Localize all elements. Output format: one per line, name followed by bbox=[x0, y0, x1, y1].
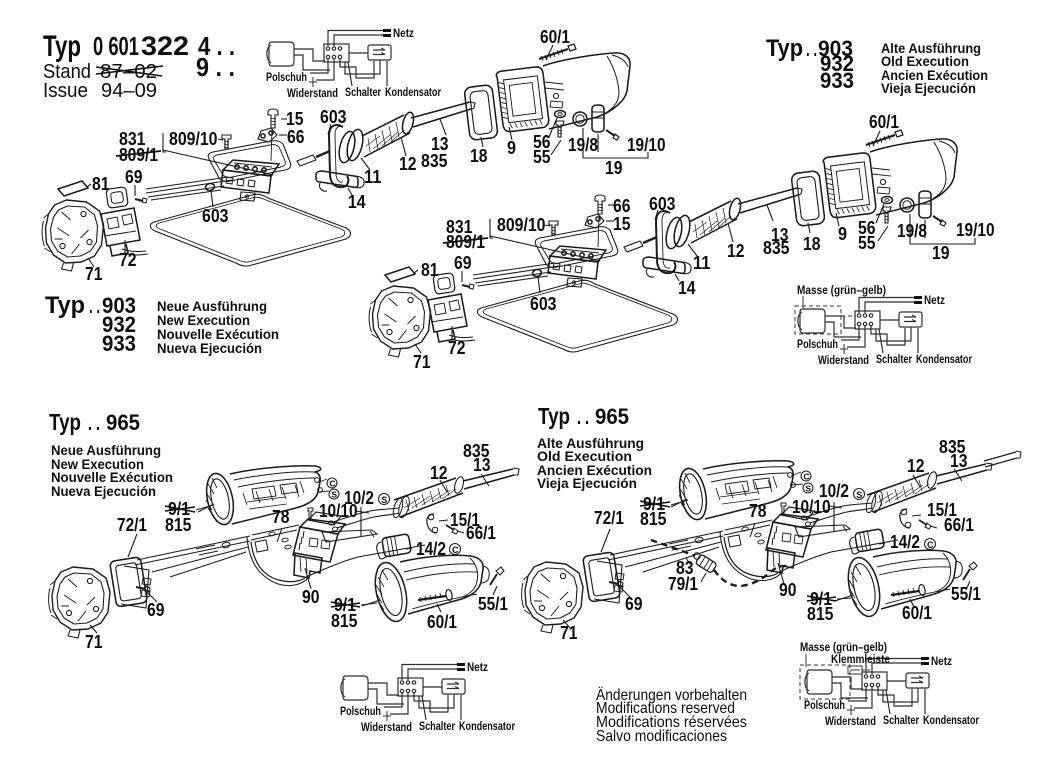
svg-text:19: 19 bbox=[932, 243, 950, 263]
svg-text:60/1: 60/1 bbox=[869, 112, 899, 132]
svg-text:835: 835 bbox=[763, 238, 790, 258]
svg-text:S: S bbox=[381, 495, 387, 505]
svg-text:603: 603 bbox=[530, 294, 557, 314]
svg-text:. .: . . bbox=[577, 407, 589, 429]
svg-text:13: 13 bbox=[950, 451, 968, 471]
svg-text:72/1: 72/1 bbox=[117, 515, 147, 535]
svg-text:71: 71 bbox=[85, 264, 103, 284]
svg-text:603: 603 bbox=[320, 107, 347, 127]
svg-text:10/10: 10/10 bbox=[792, 497, 831, 517]
svg-text:Typ: Typ bbox=[45, 292, 85, 319]
svg-text:815: 815 bbox=[165, 515, 192, 535]
svg-text:60/1: 60/1 bbox=[540, 27, 570, 47]
svg-text:Old Execution: Old Execution bbox=[537, 449, 632, 464]
svg-text:Typ: Typ bbox=[538, 403, 570, 429]
svg-text:965: 965 bbox=[106, 410, 140, 435]
svg-text:90: 90 bbox=[779, 580, 797, 600]
svg-text:9: 9 bbox=[838, 224, 847, 244]
svg-text:14/2: 14/2 bbox=[890, 532, 920, 552]
svg-text:15: 15 bbox=[613, 214, 631, 234]
svg-text:71: 71 bbox=[560, 623, 578, 643]
svg-text:12: 12 bbox=[399, 154, 417, 174]
svg-text:10/10: 10/10 bbox=[319, 501, 358, 521]
svg-text:94–09: 94–09 bbox=[101, 80, 157, 102]
svg-text:Masse (grün–gelb): Masse (grün–gelb) bbox=[800, 642, 887, 654]
svg-text:18: 18 bbox=[803, 234, 821, 254]
svg-text:Nouvelle Exécution: Nouvelle Exécution bbox=[51, 470, 173, 485]
svg-text:19/8: 19/8 bbox=[897, 221, 927, 241]
svg-text:Salvo modificaciones: Salvo modificaciones bbox=[596, 728, 727, 745]
svg-text:Masse (grün–gelb): Masse (grün–gelb) bbox=[797, 283, 886, 297]
svg-text:11: 11 bbox=[364, 167, 382, 187]
svg-text:603: 603 bbox=[202, 206, 229, 226]
svg-text:. .: . . bbox=[89, 296, 100, 318]
svg-text:12: 12 bbox=[907, 456, 925, 476]
svg-text:Typ: Typ bbox=[43, 30, 81, 63]
svg-text:New Execution: New Execution bbox=[157, 313, 250, 328]
svg-text:322: 322 bbox=[141, 31, 189, 61]
svg-text:933: 933 bbox=[102, 331, 136, 356]
svg-text:Nouvelle Exécution: Nouvelle Exécution bbox=[157, 327, 279, 342]
svg-text:72/1: 72/1 bbox=[594, 508, 624, 528]
svg-text:72: 72 bbox=[448, 338, 466, 358]
svg-text:12: 12 bbox=[727, 241, 745, 261]
svg-text:Nueva Ejecución: Nueva Ejecución bbox=[51, 484, 156, 499]
svg-text:C: C bbox=[329, 479, 335, 489]
svg-text:Nueva Ejecución: Nueva Ejecución bbox=[157, 341, 262, 356]
svg-text:S: S bbox=[856, 490, 862, 500]
svg-text:81: 81 bbox=[92, 174, 110, 194]
svg-text:69: 69 bbox=[147, 600, 165, 620]
svg-text:55/1: 55/1 bbox=[951, 584, 981, 604]
svg-text:815: 815 bbox=[807, 604, 834, 624]
svg-text:18: 18 bbox=[470, 146, 488, 166]
svg-text:. .: . . bbox=[88, 413, 100, 435]
svg-text:Old Execution: Old Execution bbox=[881, 54, 969, 69]
svg-text:69: 69 bbox=[454, 253, 472, 273]
svg-text:C: C bbox=[803, 472, 809, 482]
svg-text:66/1: 66/1 bbox=[466, 523, 496, 543]
svg-text:Vieja Ejecución: Vieja Ejecución bbox=[881, 81, 976, 96]
svg-text:S: S bbox=[331, 490, 337, 500]
svg-text:66: 66 bbox=[287, 127, 305, 147]
svg-text:11: 11 bbox=[693, 253, 711, 273]
svg-text:S: S bbox=[805, 484, 811, 494]
svg-text:19/8: 19/8 bbox=[568, 135, 598, 155]
svg-text:78: 78 bbox=[749, 501, 767, 521]
svg-text:603: 603 bbox=[649, 194, 676, 214]
svg-text:19/10: 19/10 bbox=[627, 135, 666, 155]
svg-text:66/1: 66/1 bbox=[944, 515, 974, 535]
svg-text:55/1: 55/1 bbox=[478, 594, 508, 614]
svg-text:Neue Ausführung: Neue Ausführung bbox=[51, 443, 161, 458]
svg-text:965: 965 bbox=[595, 404, 629, 429]
svg-text:Neue Ausführung: Neue Ausführung bbox=[157, 299, 267, 314]
svg-text:815: 815 bbox=[331, 611, 358, 631]
svg-text:. .: . . bbox=[806, 39, 817, 61]
svg-text:809/10: 809/10 bbox=[497, 215, 546, 235]
svg-text:55: 55 bbox=[533, 147, 551, 167]
svg-text:69: 69 bbox=[625, 594, 643, 614]
svg-text:14/2: 14/2 bbox=[416, 539, 446, 559]
svg-text:9 . .: 9 . . bbox=[196, 52, 235, 82]
svg-text:0 601: 0 601 bbox=[93, 31, 139, 61]
svg-text:71: 71 bbox=[85, 632, 103, 652]
svg-text:9: 9 bbox=[507, 138, 516, 158]
svg-text:Typ: Typ bbox=[766, 35, 803, 62]
svg-text:71: 71 bbox=[413, 352, 431, 372]
svg-text:815: 815 bbox=[640, 509, 667, 529]
svg-text:Typ: Typ bbox=[49, 409, 81, 435]
svg-text:12: 12 bbox=[430, 463, 448, 483]
svg-text:933: 933 bbox=[820, 68, 854, 93]
svg-text:66: 66 bbox=[613, 196, 631, 216]
svg-text:13: 13 bbox=[473, 455, 491, 475]
svg-text:19/10: 19/10 bbox=[956, 220, 995, 240]
svg-text:19: 19 bbox=[605, 158, 623, 178]
svg-text:55: 55 bbox=[858, 233, 876, 253]
svg-text:C: C bbox=[927, 540, 934, 550]
svg-text:C: C bbox=[452, 545, 459, 555]
svg-text:Vieja Ejecución: Vieja Ejecución bbox=[537, 476, 637, 491]
svg-text:60/1: 60/1 bbox=[902, 603, 932, 623]
svg-text:72: 72 bbox=[119, 250, 137, 270]
svg-text:79/1: 79/1 bbox=[668, 574, 698, 594]
svg-text:69: 69 bbox=[125, 167, 143, 187]
svg-text:14: 14 bbox=[678, 278, 696, 298]
svg-text:81: 81 bbox=[421, 260, 439, 280]
svg-text:Klemmleiste: Klemmleiste bbox=[831, 654, 890, 666]
svg-text:78: 78 bbox=[272, 507, 290, 527]
svg-text:835: 835 bbox=[421, 151, 448, 171]
svg-text:60/1: 60/1 bbox=[427, 612, 457, 632]
svg-text:14: 14 bbox=[348, 192, 366, 212]
svg-text:90: 90 bbox=[302, 587, 320, 607]
svg-text:809/10: 809/10 bbox=[169, 129, 218, 149]
svg-text:Issue: Issue bbox=[43, 80, 88, 102]
svg-text:15: 15 bbox=[286, 109, 304, 129]
